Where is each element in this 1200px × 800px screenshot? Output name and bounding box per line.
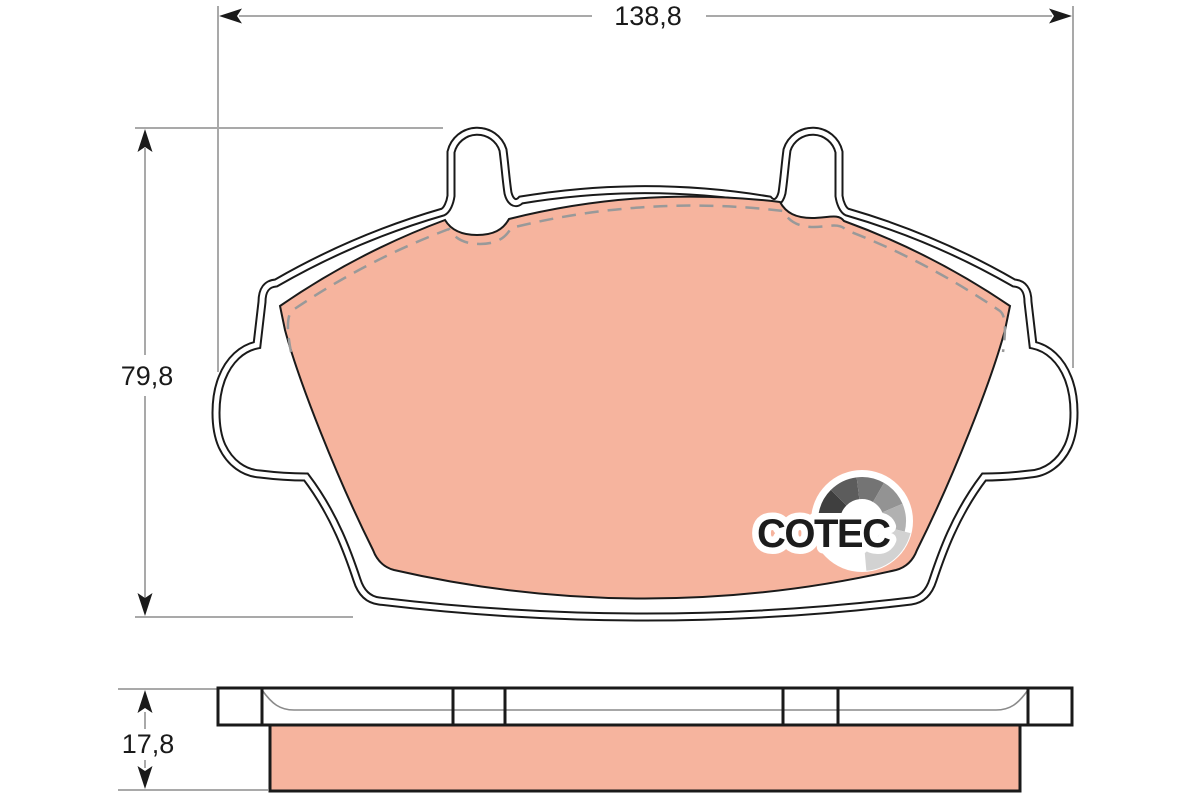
thickness-dimension-label: 17,8 — [122, 729, 175, 759]
brake-pad-front-view — [216, 131, 1074, 617]
logo-text: COTEC — [757, 512, 890, 556]
thickness-arrow-bottom — [138, 766, 153, 789]
brake-pad-side-view — [218, 688, 1072, 791]
side-friction-material — [270, 725, 1020, 791]
technical-drawing-canvas: 138,8 79,8 17,8 COTEC — [0, 0, 1200, 800]
brake-pad-drawing: 138,8 79,8 17,8 COTEC — [0, 0, 1200, 800]
thickness-arrow-top — [138, 690, 153, 713]
width-arrow-right — [1049, 9, 1072, 24]
width-dimension-label: 138,8 — [614, 1, 682, 31]
width-arrow-left — [219, 9, 242, 24]
side-backplate — [218, 688, 1072, 725]
height-dimension-label: 79,8 — [121, 361, 174, 391]
